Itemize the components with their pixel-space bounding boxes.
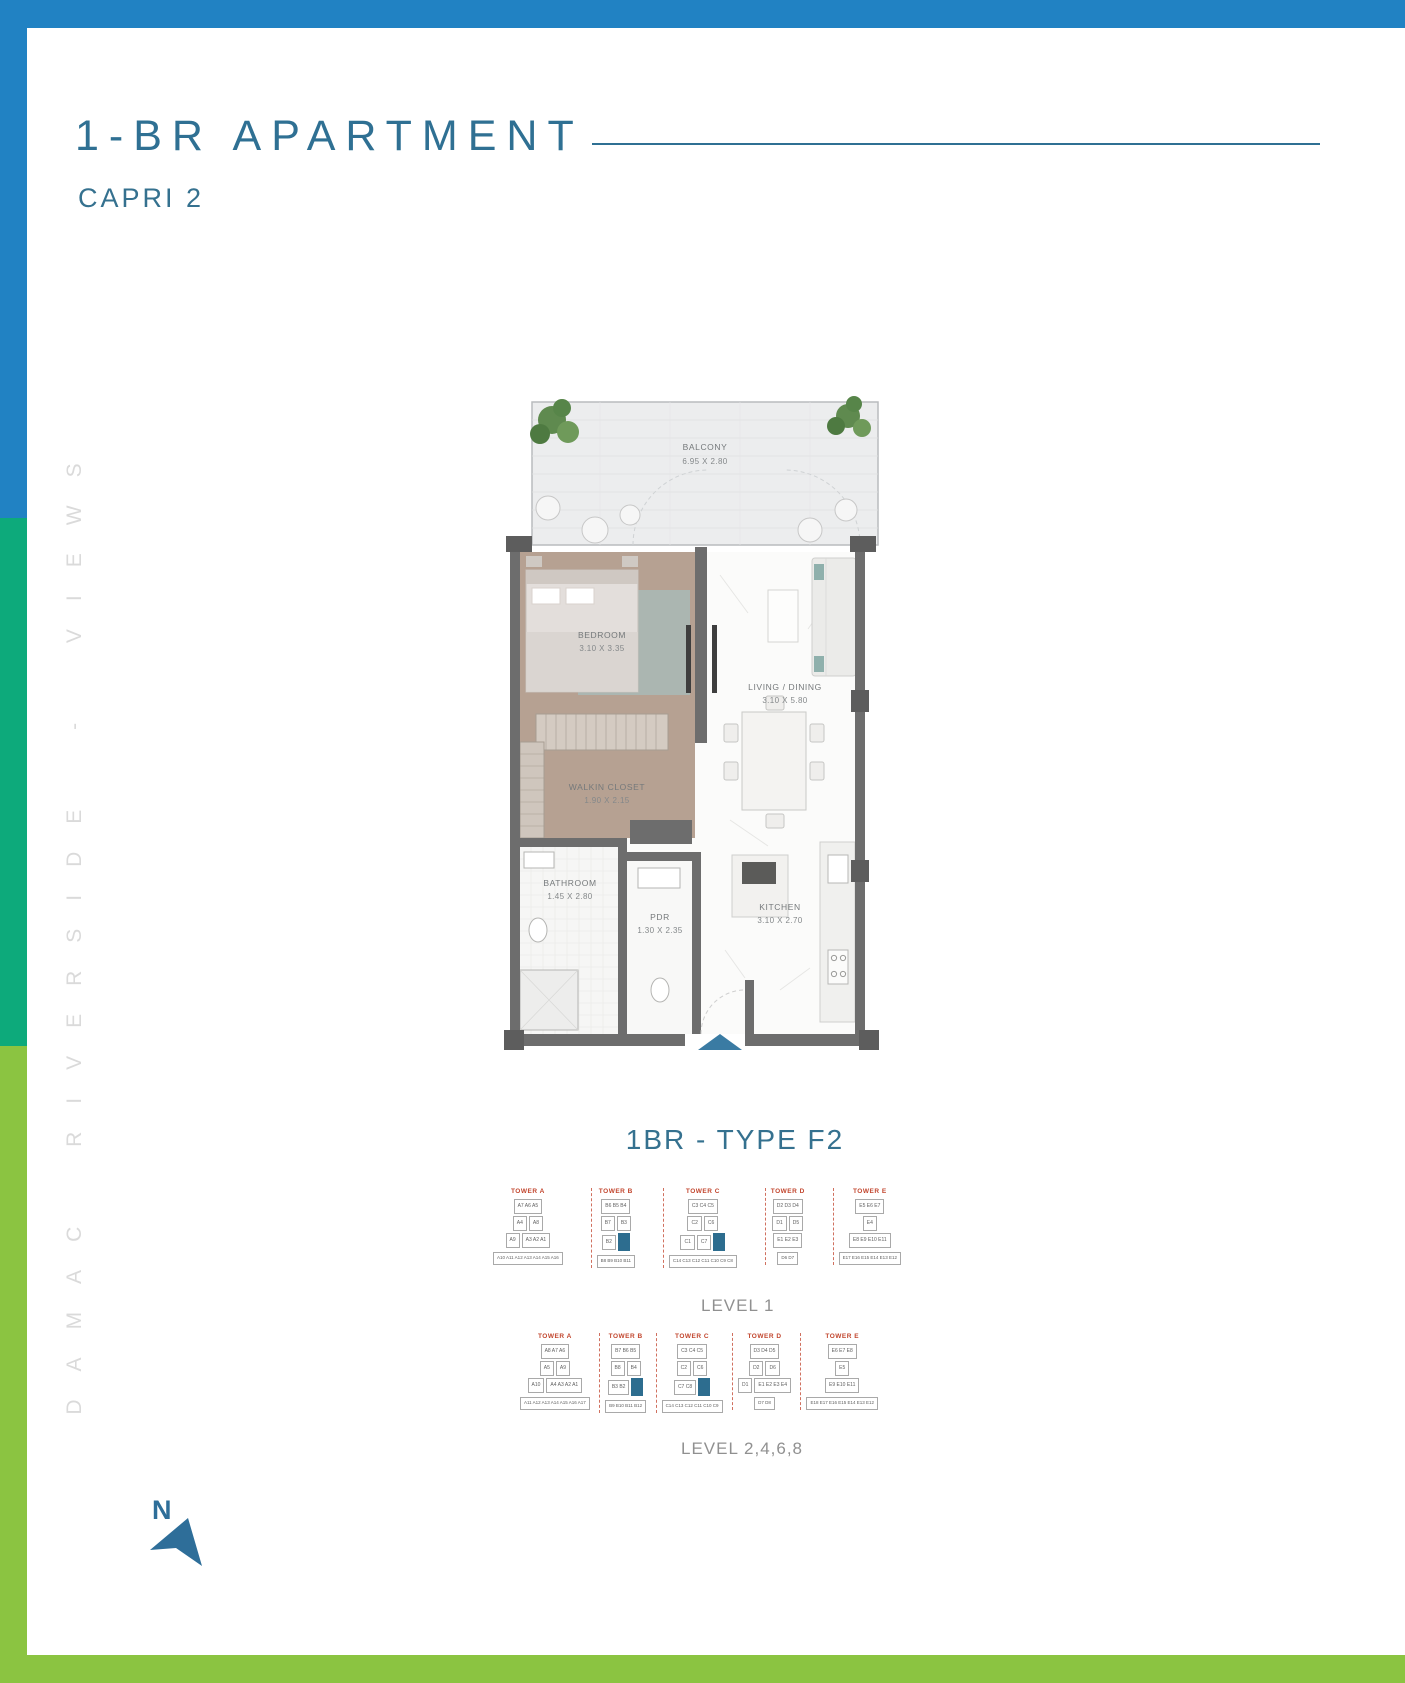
keyplan-tower: TOWER EE6 E7 E8E5E9 E10 E11E18 E17 E16 E…	[800, 1333, 883, 1410]
kitchen-dim: 3.10 X 2.70	[757, 916, 802, 925]
unit-cell: D2	[749, 1361, 763, 1376]
balcony-area: BALCONY 6.95 X 2.80	[530, 396, 878, 545]
pdr-sink	[638, 868, 680, 888]
unit-row: A10A4 A3 A2 A1	[528, 1378, 583, 1393]
unit-cell: C3 C4 C5	[688, 1199, 718, 1214]
sofa	[812, 558, 856, 676]
stove	[828, 950, 848, 984]
unit-cell-highlighted	[698, 1378, 710, 1396]
living-label: LIVING / DINING	[748, 682, 822, 692]
unit-cell: E1 E2 E3	[773, 1233, 802, 1248]
unit-cell: E9 E10 E11	[825, 1378, 859, 1393]
unit-cell: A10	[528, 1378, 545, 1393]
north-arrow-icon	[140, 1495, 220, 1585]
unit-strip: A10 A11 A12 A13 A14 A15 A16	[493, 1252, 563, 1265]
kitchen-label: KITCHEN	[759, 902, 801, 912]
keyplan-tower: TOWER AA8 A7 A6A5A9A10A4 A3 A2 A1A11 A12…	[515, 1333, 595, 1410]
tower-label: TOWER D	[771, 1188, 805, 1195]
unit-row: B8B4	[611, 1361, 641, 1376]
bathroom-sink	[524, 852, 554, 868]
unit-row: D3 D4 D5	[750, 1344, 780, 1359]
unit-type-label: 1BR - TYPE F2	[560, 1124, 910, 1156]
living-dim: 3.10 X 5.80	[762, 696, 807, 705]
unit-row: A5A9	[540, 1361, 570, 1376]
bottom-border-bar	[0, 1655, 1405, 1683]
unit-cell: C6	[693, 1361, 707, 1376]
unit-row: C3 C4 C5	[677, 1344, 707, 1359]
page-title: 1-BR APARTMENT	[75, 112, 584, 161]
unit-row: B7B3	[601, 1216, 631, 1231]
kitchen-sink	[828, 855, 848, 883]
unit-row: D2D6	[749, 1361, 780, 1376]
unit-cell: D5	[789, 1216, 803, 1231]
unit-cell: B2	[602, 1235, 616, 1250]
unit-row: C3 C4 C5	[688, 1199, 718, 1214]
balcony-dim: 6.95 X 2.80	[682, 457, 727, 466]
unit-cell: A9	[556, 1361, 570, 1376]
unit-cell-highlighted	[713, 1233, 725, 1251]
unit-row: D1D5	[772, 1216, 803, 1231]
unit-cell: A3 A2 A1	[522, 1233, 551, 1248]
nightstand	[526, 556, 542, 567]
unit-cell: C3 C4 C5	[677, 1344, 707, 1359]
tv-panel	[712, 625, 717, 693]
unit-strip: C14 C13 C12 C11 C10 C9 C8	[669, 1255, 737, 1268]
bedroom-label: BEDROOM	[578, 630, 626, 640]
unit-cell: C2	[677, 1361, 691, 1376]
left-border-blue-segment	[0, 0, 27, 518]
nightstand	[622, 556, 638, 567]
unit-cell: E1 E2 E3 E4	[754, 1378, 791, 1393]
unit-row: E6 E7 E8	[828, 1344, 857, 1359]
unit-row: E1 E2 E3	[773, 1233, 802, 1248]
entry-arrow	[698, 1034, 742, 1050]
left-border-green-segment	[0, 1046, 27, 1683]
level-2468-label: LEVEL 2,4,6,8	[681, 1439, 803, 1459]
tower-label: TOWER E	[853, 1188, 887, 1195]
unit-cell: A4 A3 A2 A1	[546, 1378, 582, 1393]
brochure-page: 1-BR APARTMENT CAPRI 2 DAMAC RIVERSIDE -…	[0, 0, 1405, 1683]
top-border-bar	[0, 0, 1405, 28]
unit-row: C2C6	[677, 1361, 708, 1376]
left-border-teal-segment	[0, 518, 27, 1046]
tower-label: TOWER C	[675, 1333, 709, 1340]
pdr-label: PDR	[650, 912, 670, 922]
unit-row: E5	[835, 1361, 849, 1376]
unit-cell-highlighted	[618, 1233, 630, 1251]
keyplan-tower: TOWER BB7 B6 B5B8B4B3 B2B9 B10 B11 B12	[599, 1333, 651, 1413]
unit-cell: C2	[687, 1216, 701, 1231]
unit-row: E8 E9 E10 E11	[849, 1233, 891, 1248]
bathroom-area: BATHROOM 1.45 X 2.80	[519, 847, 618, 1034]
unit-cell: A5	[540, 1361, 554, 1376]
unit-cell: D6	[765, 1361, 779, 1376]
unit-row: B3 B2	[608, 1378, 644, 1396]
north-compass: N	[140, 1495, 220, 1585]
pdr-toilet	[651, 978, 669, 1002]
unit-cell: A7 A6 A5	[514, 1199, 543, 1214]
tower-label: TOWER A	[511, 1188, 545, 1195]
unit-strip: E17 E16 E15 E14 E13 E12	[839, 1252, 901, 1265]
keyplan-tower: TOWER DD3 D4 D5D2D6D1E1 E2 E3 E4D7 D8	[732, 1333, 796, 1410]
keyplan-tower: TOWER CC3 C4 C5C2C6C1C7C14 C13 C12 C11 C…	[663, 1188, 742, 1268]
floorplan: BALCONY 6.95 X 2.80 BEDR	[480, 390, 900, 1060]
bedroom-dim: 3.10 X 3.35	[579, 644, 624, 653]
unit-cell: C7	[697, 1235, 711, 1250]
unit-strip: B8 B9 B10 B11	[597, 1255, 635, 1268]
tower-label: TOWER D	[747, 1333, 781, 1340]
unit-cell: A4	[513, 1216, 527, 1231]
unit-cell: E8 E9 E10 E11	[849, 1233, 891, 1248]
unit-cell: B8	[611, 1361, 625, 1376]
unit-strip: C14 C13 C12 C11 C10 C9	[662, 1400, 723, 1413]
unit-cell: C7 C8	[674, 1380, 696, 1395]
unit-strip: A11 A12 A13 A14 A15 A16 A17	[520, 1397, 590, 1410]
unit-cell: E4	[863, 1216, 877, 1231]
keyplan-level-1: TOWER AA7 A6 A5A4A8A9A3 A2 A1A10 A11 A12…	[488, 1188, 906, 1268]
coffee-table	[768, 590, 798, 642]
unit-row: B6 B5 B4	[601, 1199, 630, 1214]
unit-strip: D7 D8	[754, 1397, 775, 1410]
page-subtitle: CAPRI 2	[78, 183, 204, 214]
unit-cell: E5 E6 E7	[855, 1199, 884, 1214]
closet-label: WALKIN CLOSET	[569, 782, 645, 792]
unit-cell: D1	[738, 1378, 752, 1393]
unit-cell: E6 E7 E8	[828, 1344, 857, 1359]
tower-label: TOWER E	[825, 1333, 859, 1340]
unit-cell-highlighted	[631, 1378, 643, 1396]
keyplan-tower: TOWER CC3 C4 C5C2C6C7 C8C14 C13 C12 C11 …	[656, 1333, 728, 1413]
tower-label: TOWER B	[609, 1333, 643, 1340]
bathroom-toilet	[529, 918, 547, 942]
title-rule	[592, 143, 1320, 145]
unit-cell: B7	[601, 1216, 615, 1231]
unit-cell: A8	[529, 1216, 543, 1231]
pdr-dim: 1.30 X 2.35	[637, 926, 682, 935]
unit-row: D2 D3 D4	[773, 1199, 803, 1214]
unit-cell: C6	[704, 1216, 718, 1231]
unit-strip: B9 B10 B11 B12	[605, 1400, 646, 1413]
unit-cell: B3	[617, 1216, 631, 1231]
bathroom-dim: 1.45 X 2.80	[547, 892, 592, 901]
keyplan-tower: TOWER DD2 D3 D4D1D5E1 E2 E3D6 D7	[765, 1188, 810, 1265]
unit-row: D1E1 E2 E3 E4	[738, 1378, 791, 1393]
level-1-label: LEVEL 1	[701, 1296, 774, 1316]
unit-cell: B4	[627, 1361, 641, 1376]
unit-strip: E18 E17 E16 E15 E14 E13 E12	[806, 1397, 878, 1410]
unit-row: E4	[863, 1216, 877, 1231]
unit-cell: A9	[506, 1233, 520, 1248]
balcony-label: BALCONY	[683, 442, 728, 452]
unit-row: A4A8	[513, 1216, 543, 1231]
unit-cell: B7 B6 B5	[611, 1344, 640, 1359]
floorplan-drawing: BALCONY 6.95 X 2.80 BEDR	[480, 390, 900, 1060]
unit-row: E5 E6 E7	[855, 1199, 884, 1214]
unit-row: B2	[602, 1233, 630, 1251]
unit-strip: D6 D7	[777, 1252, 798, 1265]
tower-label: TOWER B	[599, 1188, 633, 1195]
unit-row: C2C6	[687, 1216, 718, 1231]
tower-label: TOWER A	[538, 1333, 572, 1340]
unit-row: A9A3 A2 A1	[506, 1233, 551, 1248]
unit-row: B7 B6 B5	[611, 1344, 640, 1359]
keyplan-tower: TOWER BB6 B5 B4B7B3B2B8 B9 B10 B11	[591, 1188, 640, 1268]
unit-cell: D2 D3 D4	[773, 1199, 803, 1214]
keyplan-tower: TOWER EE5 E6 E7E4E8 E9 E10 E11E17 E16 E1…	[833, 1188, 906, 1265]
unit-cell: A8 A7 A6	[541, 1344, 570, 1359]
keyplan-tower: TOWER AA7 A6 A5A4A8A9A3 A2 A1A10 A11 A12…	[488, 1188, 568, 1265]
bathroom-label: BATHROOM	[543, 878, 596, 888]
unit-row: C7 C8	[674, 1378, 710, 1396]
unit-row: C1C7	[680, 1233, 725, 1251]
keyplan-level-2468: TOWER AA8 A7 A6A5A9A10A4 A3 A2 A1A11 A12…	[515, 1333, 883, 1413]
closet-dim: 1.90 X 2.15	[584, 796, 629, 805]
unit-row: A8 A7 A6	[541, 1344, 570, 1359]
unit-cell: D1	[772, 1216, 786, 1231]
unit-row: E9 E10 E11	[825, 1378, 859, 1393]
unit-cell: C1	[680, 1235, 694, 1250]
unit-cell: B3 B2	[608, 1380, 630, 1395]
vertical-watermark-text: DAMAC RIVERSIDE - VIEWS	[63, 390, 109, 1460]
powder-room-area: PDR 1.30 X 2.35	[627, 861, 692, 1034]
unit-row: A7 A6 A5	[514, 1199, 543, 1214]
tv-panel	[686, 625, 691, 693]
unit-cell: D3 D4 D5	[750, 1344, 780, 1359]
unit-cell: E5	[835, 1361, 849, 1376]
tower-label: TOWER C	[686, 1188, 720, 1195]
unit-cell: B6 B5 B4	[601, 1199, 630, 1214]
